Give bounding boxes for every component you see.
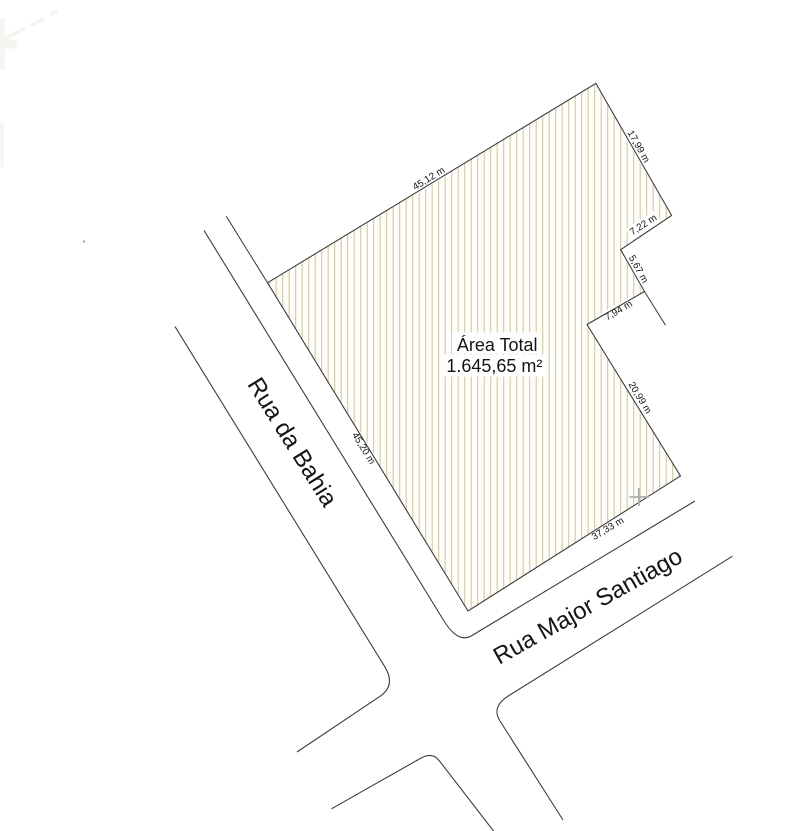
svg-text:Área Total: Área Total [457,335,538,355]
svg-text:1.645,65 m²: 1.645,65 m² [446,356,542,376]
svg-text:Rua da Bahia: Rua da Bahia [242,373,343,512]
